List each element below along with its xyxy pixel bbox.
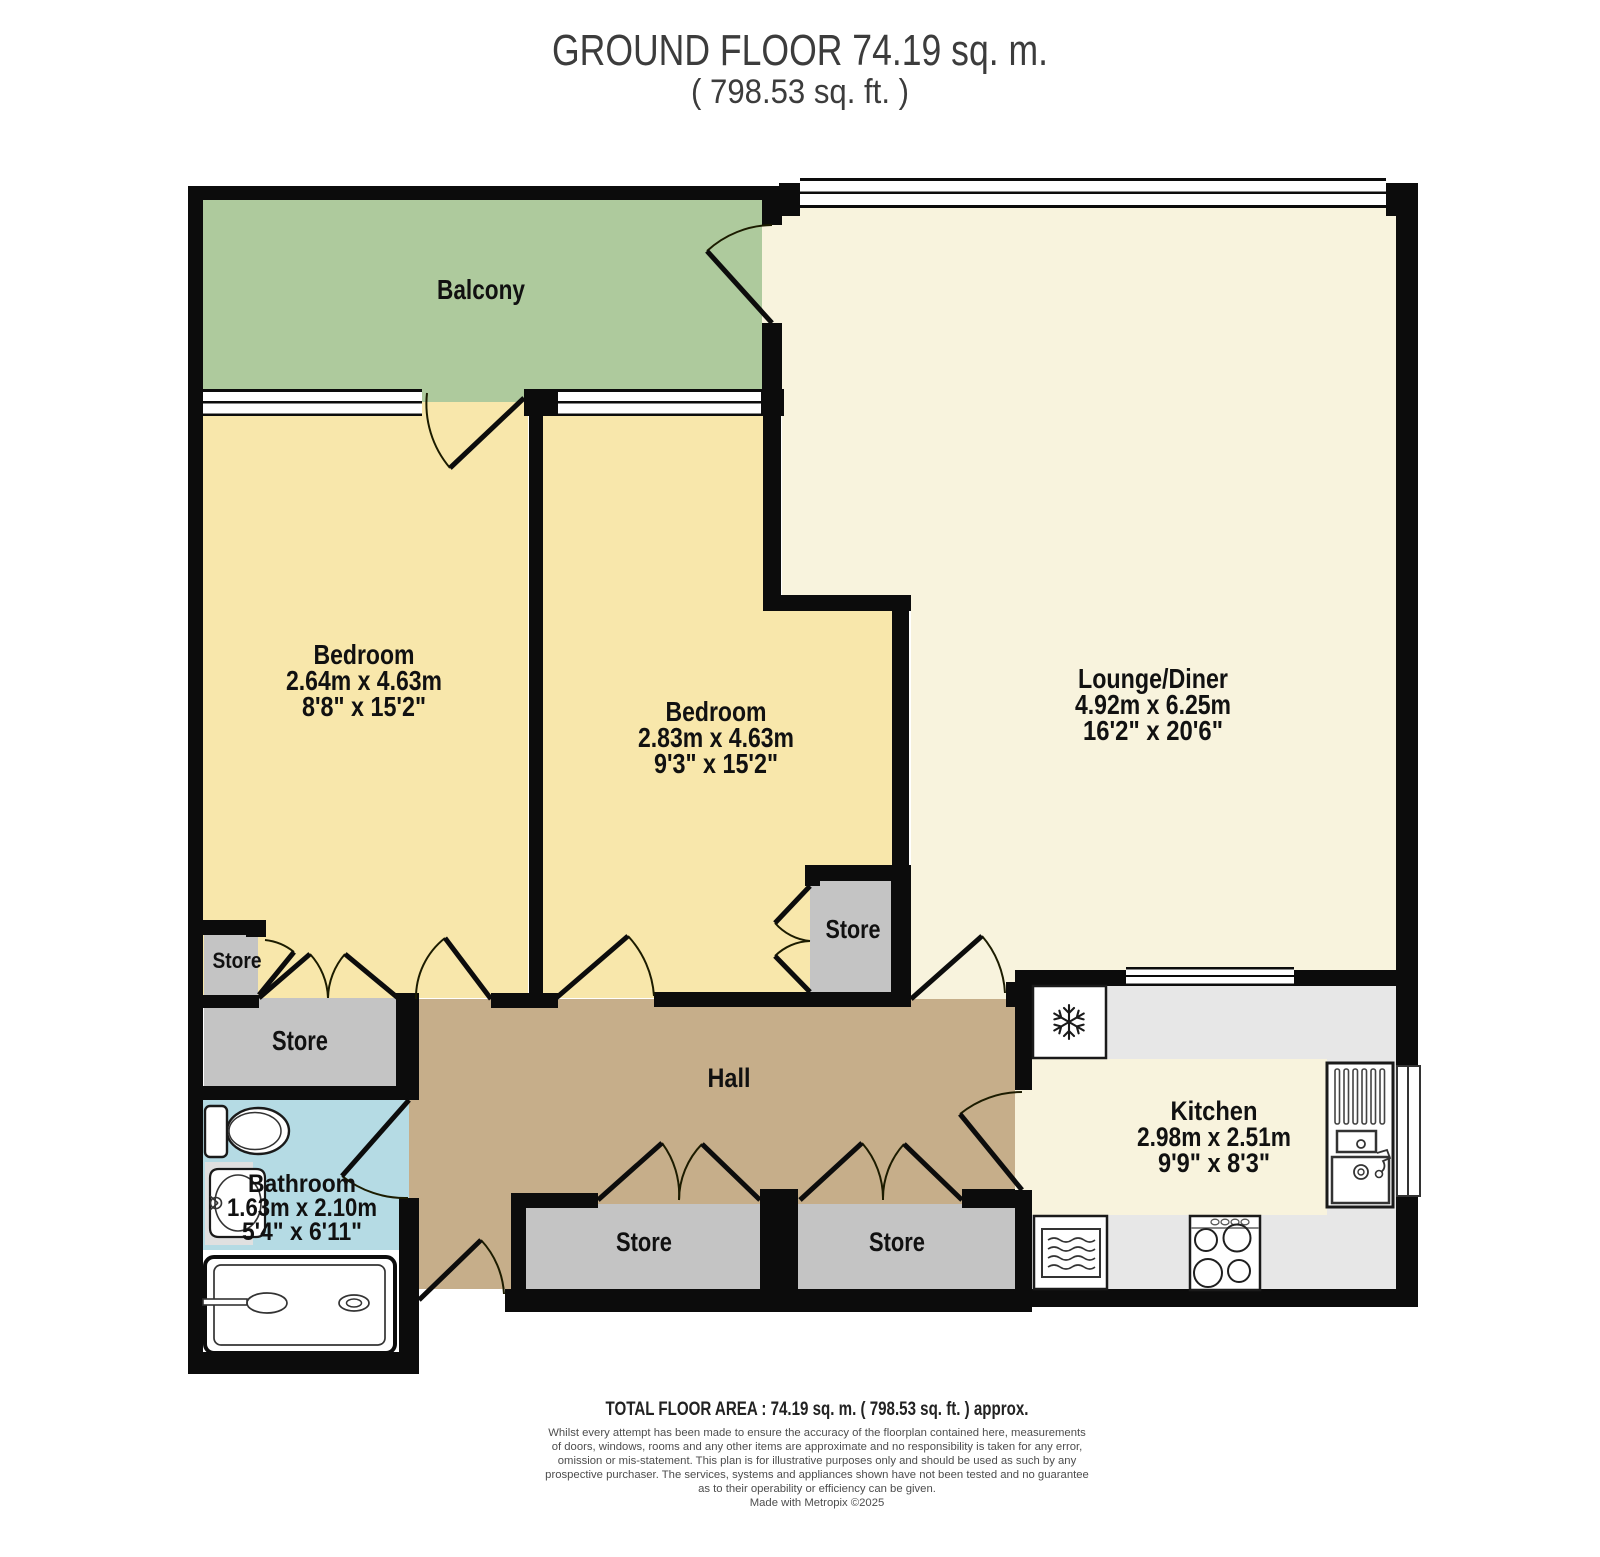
svg-text:Balcony: Balcony [437, 274, 525, 305]
svg-text:8'8" x 15'2": 8'8" x 15'2" [302, 691, 426, 722]
svg-text:GROUND FLOOR 74.19 sq. m.: GROUND FLOOR 74.19 sq. m. [552, 26, 1048, 75]
svg-text:Made with Metropix ©2025: Made with Metropix ©2025 [750, 1497, 885, 1509]
svg-text:Whilst every attempt has been: Whilst every attempt has been made to en… [548, 1427, 1086, 1439]
svg-text:as to their operability or eff: as to their operability or efficiency ca… [698, 1483, 936, 1495]
svg-text:Store: Store [869, 1227, 925, 1257]
svg-text:of doors, windows, rooms and a: of doors, windows, rooms and any other i… [552, 1441, 1083, 1453]
svg-text:TOTAL FLOOR AREA : 74.19 sq. m: TOTAL FLOOR AREA : 74.19 sq. m. ( 798.53… [606, 1399, 1029, 1420]
svg-text:16'2" x 20'6": 16'2" x 20'6" [1083, 715, 1223, 746]
svg-text:prospective purchaser. The ser: prospective purchaser. The services, sys… [545, 1469, 1089, 1481]
svg-text:Store: Store [826, 914, 881, 944]
svg-text:9'9" x 8'3": 9'9" x 8'3" [1158, 1148, 1270, 1178]
svg-text:Hall: Hall [708, 1063, 751, 1093]
svg-text:5'4" x 6'11": 5'4" x 6'11" [242, 1218, 362, 1246]
svg-text:omission or mis-statement. Thi: omission or mis-statement. This plan is … [558, 1455, 1077, 1467]
svg-text:( 798.53 sq. ft. ): ( 798.53 sq. ft. ) [691, 73, 909, 111]
svg-text:Store: Store [272, 1025, 328, 1056]
svg-text:Store: Store [213, 948, 262, 973]
svg-text:9'3" x 15'2": 9'3" x 15'2" [654, 748, 778, 779]
svg-text:Store: Store [616, 1227, 672, 1257]
